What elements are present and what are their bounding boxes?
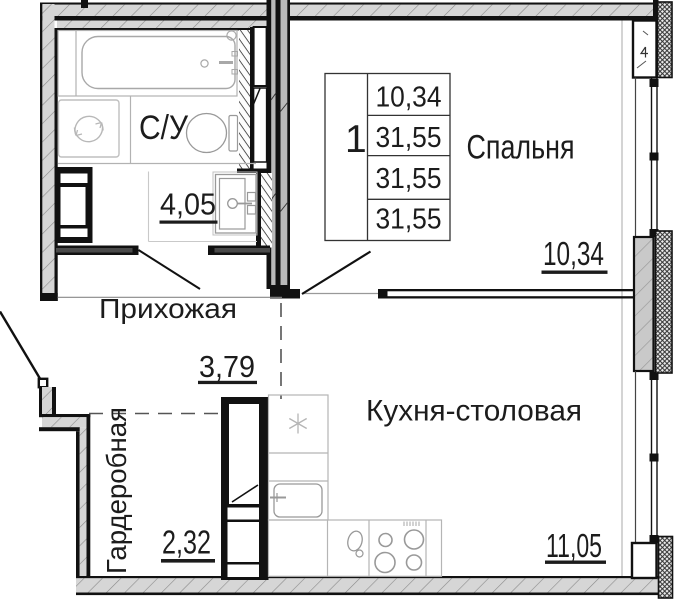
svg-text:1: 1 xyxy=(345,118,367,161)
svg-text:С/У: С/У xyxy=(139,109,188,147)
svg-text:3,79: 3,79 xyxy=(199,349,255,384)
svg-text:Спальня: Спальня xyxy=(467,128,575,166)
svg-text:10,34: 10,34 xyxy=(376,82,442,114)
svg-text:Прихожая: Прихожая xyxy=(99,293,237,324)
svg-text:2,32: 2,32 xyxy=(162,524,211,561)
svg-text:4,05: 4,05 xyxy=(160,187,216,222)
svg-text:10,34: 10,34 xyxy=(543,235,604,272)
svg-text:11,05: 11,05 xyxy=(546,527,602,564)
svg-text:Гардеробная: Гардеробная xyxy=(101,407,132,574)
svg-text:31,55: 31,55 xyxy=(376,204,442,236)
svg-text:31,55: 31,55 xyxy=(376,122,442,154)
svg-text:31,55: 31,55 xyxy=(376,163,442,195)
svg-text:Кухня-столовая: Кухня-столовая xyxy=(366,395,582,428)
